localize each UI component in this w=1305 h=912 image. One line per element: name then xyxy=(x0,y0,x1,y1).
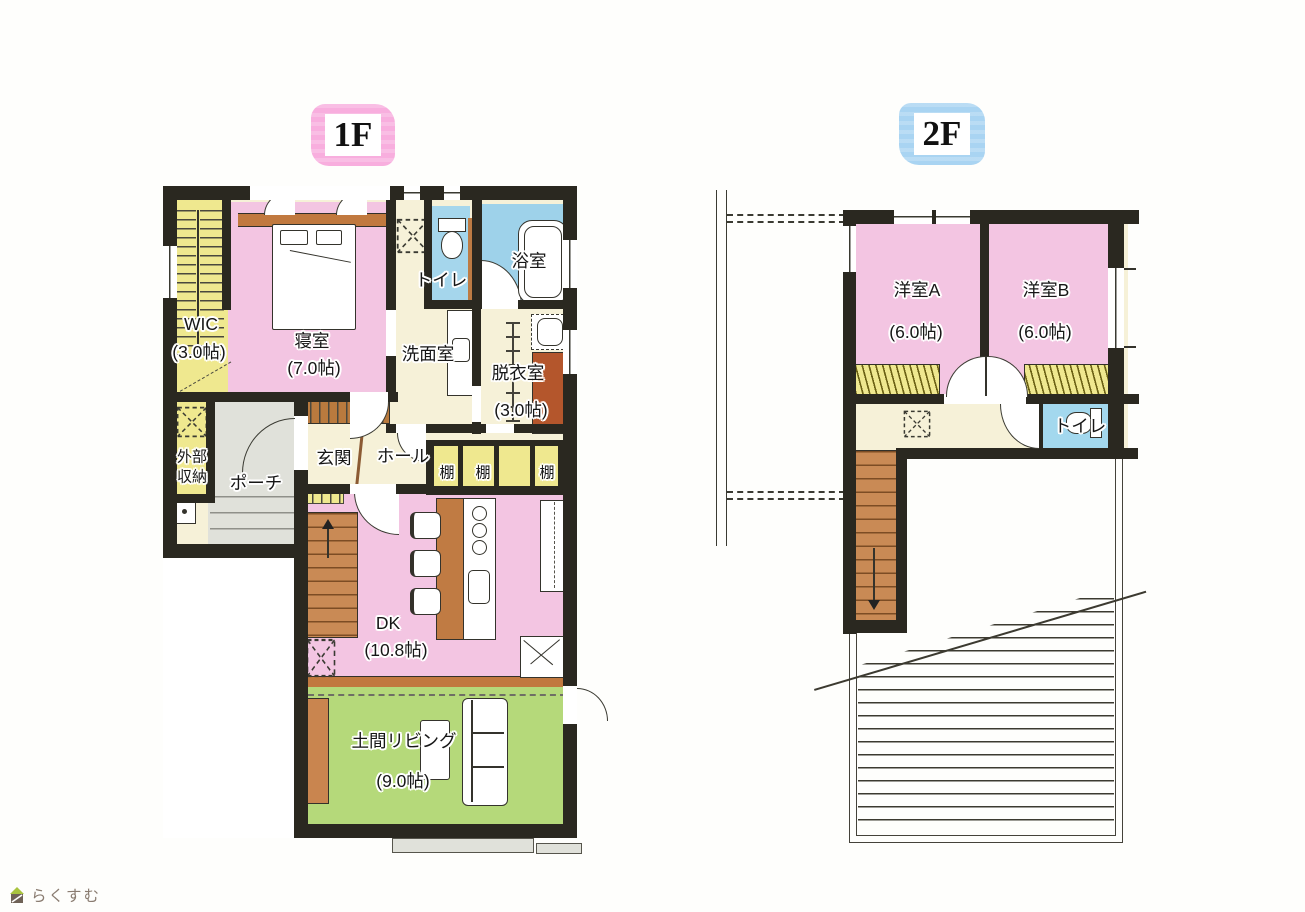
sofa-back-line xyxy=(471,700,473,802)
floor1-badge: 1F xyxy=(311,104,395,166)
room-size-dressing: (3.0帖) xyxy=(494,400,547,420)
south-step xyxy=(536,843,582,854)
floorplan-canvas: 1F 2F xyxy=(0,0,1305,912)
room-label-bath: 浴室 xyxy=(512,251,547,271)
f2-rooms-door-center-line xyxy=(985,356,987,396)
room-size-wic: (3.0帖) xyxy=(172,342,225,362)
wall xyxy=(843,210,1139,224)
wall xyxy=(222,198,231,310)
wall xyxy=(458,444,463,490)
stairs-1f xyxy=(302,512,358,638)
wic-hanger-rack xyxy=(200,210,224,358)
wic-hanger-rack xyxy=(175,210,196,358)
wall xyxy=(163,544,308,558)
eaves-dashed-line xyxy=(727,491,845,493)
wall xyxy=(494,444,499,490)
dk-cabinet-dash xyxy=(554,502,555,588)
wall xyxy=(896,448,907,624)
shelf-label: 棚 xyxy=(439,464,454,481)
south-step xyxy=(392,838,534,853)
floor2-badge: 2F xyxy=(899,103,985,165)
window xyxy=(1108,268,1124,348)
window xyxy=(404,186,420,200)
window xyxy=(843,226,856,272)
window xyxy=(563,330,577,374)
shelf-label: 棚 xyxy=(475,464,490,481)
door-opening xyxy=(350,484,396,494)
room-size-western-a: (6.0帖) xyxy=(889,322,942,342)
door-opening xyxy=(386,310,396,356)
stairs-down-arrowhead xyxy=(868,600,880,616)
stairs-2f xyxy=(850,450,902,624)
toilet-bowl-icon xyxy=(441,231,463,259)
window-tick xyxy=(1124,268,1136,270)
room-label-entrance: 玄関 xyxy=(317,448,352,468)
wall xyxy=(843,620,907,633)
wall xyxy=(843,210,856,634)
floor2-badge-label: 2F xyxy=(914,113,971,155)
door-opening xyxy=(350,392,388,402)
eaves-line xyxy=(716,190,727,546)
f2-closet-b xyxy=(1024,364,1114,398)
stove-burner-icon xyxy=(472,506,487,521)
wall xyxy=(896,448,1138,459)
window xyxy=(444,186,460,200)
room-label-washroom: 洗面室 xyxy=(402,344,455,364)
room-label-porch: ポーチ xyxy=(230,473,283,493)
window xyxy=(936,210,970,224)
room-label-doma-living: 土間リビング xyxy=(352,731,457,751)
sofa-divider xyxy=(471,732,504,734)
chair-icon xyxy=(410,512,441,539)
room-size-western-b: (6.0帖) xyxy=(1018,322,1071,342)
door-opening xyxy=(294,416,308,470)
room-label-bedroom: 寝室 xyxy=(295,331,330,351)
pillow-icon xyxy=(316,230,342,245)
stove-burner-icon xyxy=(472,540,487,555)
wall xyxy=(426,486,570,495)
room-label-ext-storage: 外部収納 xyxy=(174,448,210,487)
sofa-divider xyxy=(471,766,504,768)
door-opening xyxy=(482,300,518,309)
wall xyxy=(294,824,576,838)
storage-x-icon xyxy=(306,638,336,678)
floor1-badge-label: 1F xyxy=(325,114,382,156)
window xyxy=(894,210,932,224)
room-label-dk: DK xyxy=(376,613,400,633)
shelf-label: 棚 xyxy=(539,464,554,481)
porch-steps xyxy=(210,496,302,548)
window xyxy=(250,186,390,200)
window xyxy=(563,240,577,288)
storage-x-icon xyxy=(903,410,931,438)
stairs-down-arrow xyxy=(873,548,875,602)
wall xyxy=(386,192,396,402)
room-label-hall: ホール xyxy=(377,446,430,466)
room-size-bedroom: (7.0帖) xyxy=(287,358,340,378)
door-opening xyxy=(396,424,426,433)
room-label-dressing: 脱衣室 xyxy=(492,363,545,383)
toilet-tank-icon xyxy=(438,218,466,232)
window-tick xyxy=(1124,346,1136,348)
wall xyxy=(163,494,215,503)
house-icon xyxy=(8,886,26,904)
window xyxy=(163,246,177,298)
site-logo: らくすむ xyxy=(8,884,101,906)
stove-burner-icon xyxy=(472,523,487,538)
doma-bench xyxy=(305,698,329,804)
room-label-western-b: 洋室B xyxy=(1023,280,1070,300)
door-opening xyxy=(563,686,577,724)
f1-outside-mask xyxy=(163,558,294,838)
f2-closet-a xyxy=(850,364,940,398)
door-opening xyxy=(472,386,481,422)
site-logo-text: らくすむ xyxy=(31,884,101,906)
washing-machine-drum xyxy=(537,318,563,346)
eaves-dashed-line xyxy=(727,498,845,500)
stairs-up-arrowhead xyxy=(322,513,334,529)
room-size-dk: (10.8帖) xyxy=(364,640,427,660)
sofa-icon xyxy=(462,698,508,806)
pillow-icon xyxy=(280,230,308,245)
sink-icon xyxy=(468,570,490,604)
living-door-arc xyxy=(577,688,608,721)
room-label-toilet: トイレ xyxy=(415,270,468,290)
eaves-dashed-line xyxy=(727,214,845,216)
eaves-dashed-line xyxy=(727,221,845,223)
room-label-wic: WIC xyxy=(184,314,218,334)
chair-icon xyxy=(410,588,441,615)
wall xyxy=(472,196,482,308)
doma-dashed-line xyxy=(308,694,566,696)
wall xyxy=(530,444,535,490)
wall xyxy=(980,218,989,366)
meter-box-dot xyxy=(182,509,187,514)
wic-divider-line xyxy=(197,210,199,358)
room-label-toilet-2f: トイレ xyxy=(1054,416,1107,436)
door-opening xyxy=(486,424,514,433)
room-label-western-a: 洋室A xyxy=(894,280,941,300)
chair-icon xyxy=(410,550,441,577)
storage-x-icon xyxy=(176,406,208,438)
room-size-doma-living: (9.0帖) xyxy=(376,771,429,791)
